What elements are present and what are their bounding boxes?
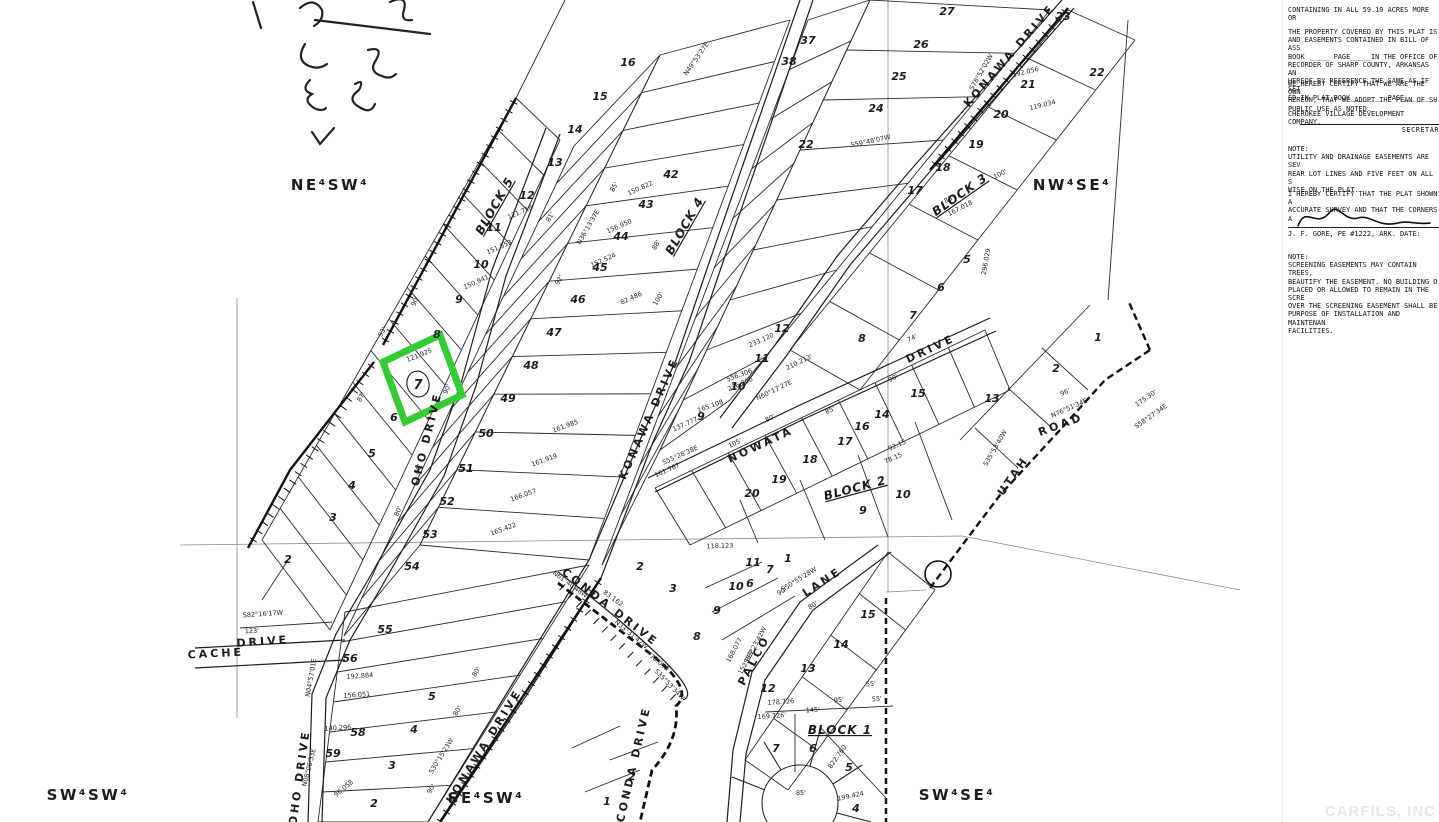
lot-number: 27 xyxy=(939,5,955,18)
labels-layer: NE⁴SW⁴NW⁴SE⁴SW⁴SW⁴SE⁴SW⁴SW⁴SE⁴KONAWA DRI… xyxy=(47,2,1169,822)
lot-number: 19 xyxy=(771,473,787,486)
dimension-label: 88' xyxy=(650,238,662,251)
dimension-label: 296.029 xyxy=(980,248,993,276)
lot-number: 56 xyxy=(342,652,358,665)
lot-number: 50 xyxy=(478,427,494,440)
dimension-label: 92.15 xyxy=(887,438,907,453)
dimension-label: 123' xyxy=(245,627,260,635)
lot-number: 2 xyxy=(1052,362,1060,375)
street-label: DRIVE xyxy=(236,633,290,650)
dimension-label: S30°15'23W xyxy=(427,736,455,775)
lot-number: 15 xyxy=(910,387,926,400)
lot-number: 9 xyxy=(713,604,721,617)
dimension-label: 55' xyxy=(866,680,877,689)
dimension-label: N04°57'01E xyxy=(304,658,319,698)
lot-number: 12 xyxy=(774,322,790,335)
lot-number: 47 xyxy=(545,326,562,339)
lot-number: 16 xyxy=(854,420,870,433)
utility-easement-note: NOTE: UTILITY AND DRAINAGE EASEMENTS ARE… xyxy=(1288,145,1439,194)
dimension-label: 150.822 xyxy=(626,179,654,197)
dimension-label: S35°53'40W xyxy=(982,428,1009,467)
street-label: UTAH xyxy=(995,454,1032,499)
dimension-label: 78.15 xyxy=(883,451,903,466)
dimension-label: 199.424 xyxy=(837,789,865,802)
lot-number: 3 xyxy=(669,582,677,595)
lot-number: 9 xyxy=(859,504,867,517)
lot-number: 8 xyxy=(858,332,866,345)
dimension-label: 74' xyxy=(906,332,919,344)
lot-number: 14 xyxy=(874,408,889,421)
dimension-label: 165.422 xyxy=(489,521,517,538)
dimension-label: S59°48'07W xyxy=(850,133,892,149)
lot-number: 10 xyxy=(728,580,744,593)
lot-number: 49 xyxy=(499,392,516,405)
lot-number: 3 xyxy=(388,759,396,772)
dimension-label: 96' xyxy=(1059,386,1072,397)
lot-number: 21 xyxy=(1020,78,1035,91)
lot-number: 1 xyxy=(1094,331,1102,344)
dimension-label: 156.051 xyxy=(343,690,370,700)
watermark: CARFILS, INC xyxy=(1325,803,1436,820)
secretary-label: SECRETAR xyxy=(1402,126,1439,134)
lot-number: 11 xyxy=(754,352,769,365)
lot-number: 2 xyxy=(628,770,636,783)
lot-number: 6 xyxy=(809,742,817,755)
dimension-label: 169.726' xyxy=(757,711,786,721)
lot-number: 18 xyxy=(802,453,818,466)
lot-number: 4 xyxy=(851,802,860,815)
street-label: KONAWA DRIVE xyxy=(961,2,1058,110)
dimension-label: 121.718 xyxy=(506,203,534,221)
block-label: BLOCK 4 xyxy=(662,195,706,258)
lot-number: 4 xyxy=(409,723,418,736)
lot-number: 9 xyxy=(455,293,463,306)
dimension-label: 100' xyxy=(651,291,665,307)
dimension-label: 150.941 xyxy=(462,273,490,291)
lot-number: 6 xyxy=(390,411,398,424)
lot-number: 25 xyxy=(891,70,907,83)
dimension-label: 166.057 xyxy=(509,487,537,504)
dimension-label: 161.919 xyxy=(530,452,558,469)
dimension-label: 90' xyxy=(442,383,453,396)
lot-number: 11 xyxy=(745,556,760,569)
lot-number: 12 xyxy=(760,682,776,695)
quarter-section-label: SW⁴SE⁴ xyxy=(919,786,996,804)
dimension-label: 140.296 xyxy=(324,723,351,732)
dimension-label: 165.108 xyxy=(696,398,724,415)
quarter-section-label: SW⁴SW⁴ xyxy=(47,786,130,804)
lot-number: 22 xyxy=(1089,66,1105,79)
lot-number: 20 xyxy=(993,108,1009,121)
plat-map: 7 121.925 NE⁴SW⁴NW⁴SE⁴SW⁴SW⁴SE⁴SW⁴SW⁴SE⁴… xyxy=(0,0,1439,822)
plat-document: { "title": "Cherokee Village subdivision… xyxy=(0,0,1439,822)
dimension-label: 80' xyxy=(807,599,820,611)
lot-number: 8 xyxy=(433,328,441,341)
dimension-label: 85' xyxy=(796,789,807,797)
dimension-label: 81' xyxy=(544,210,556,223)
dimension-label: 80' xyxy=(393,505,404,518)
dimension-label: 178.726 xyxy=(767,697,794,707)
streets-layer xyxy=(195,0,1074,822)
legal-text-panel: CONTAINING IN ALL 59.10 ACRES MORE OR TH… xyxy=(1286,0,1439,822)
dimension-label: 100' xyxy=(992,167,1008,181)
lot-number: 1 xyxy=(784,552,792,565)
street-label: CONDA DRIVE xyxy=(614,705,653,822)
certification-paragraph: WE HEREBY CERTIFY THAT WE ARE THE OWN HE… xyxy=(1288,80,1439,113)
lot-number: 48 xyxy=(522,359,539,372)
lot-number: 14 xyxy=(833,638,848,651)
lot-number: 23 xyxy=(1055,10,1071,23)
dimension-label: 55' xyxy=(872,695,883,704)
dimension-label: 80' xyxy=(451,704,463,717)
dimension-label: 233.120 xyxy=(747,331,775,349)
block-label: BLOCK 1 xyxy=(808,723,872,737)
lot-number: 54 xyxy=(404,560,419,573)
lot-number: 5 xyxy=(428,690,436,703)
handwritten-notes xyxy=(253,0,430,144)
block-label: BLOCK 2 xyxy=(822,473,888,503)
lot-number: 2 xyxy=(370,797,378,810)
dimension-label: 92' xyxy=(553,273,565,286)
lot-number: 55 xyxy=(377,623,393,636)
dimension-label: 90' xyxy=(425,782,437,795)
surveyor-signature xyxy=(1290,202,1439,230)
lot-number: 7 xyxy=(772,742,780,755)
dimension-label: 151.553 xyxy=(485,238,513,256)
street-label: CONDA DRIVE xyxy=(559,566,661,649)
lot-number: 13 xyxy=(800,662,816,675)
lot-number: 10 xyxy=(473,258,489,271)
acreage-note: CONTAINING IN ALL 59.10 ACRES MORE OR xyxy=(1288,6,1439,22)
scan-seam xyxy=(1282,0,1283,822)
quarter-section-label: NE⁴SW⁴ xyxy=(291,176,369,194)
lot-number: 6 xyxy=(937,281,945,294)
lot-number: 14 xyxy=(567,123,582,136)
lot-number: 22 xyxy=(798,138,814,151)
lot-number: 17 xyxy=(837,435,853,448)
cul-de-sac xyxy=(732,734,871,822)
lot-number: 10 xyxy=(895,488,911,501)
highlighted-lot-number: 7 xyxy=(413,378,423,393)
lot-number: 13 xyxy=(547,156,563,169)
lot-number: 7 xyxy=(909,309,917,322)
lot-number: 37 xyxy=(800,34,816,47)
oho-drive-road xyxy=(308,128,546,822)
lot-number: 13 xyxy=(984,392,1000,405)
dimension-label: 192.884 xyxy=(346,671,373,681)
dimension-label: 168.077 xyxy=(724,636,744,663)
dimension-label: 85' xyxy=(608,180,620,193)
lot-number: 5 xyxy=(368,447,376,460)
dimension-label: S82°16'17W xyxy=(242,609,283,620)
lot-number: 8 xyxy=(693,630,701,643)
surveyor-name-line: J. F. GORE, PE #1222, ARK. DATE: xyxy=(1288,227,1439,238)
lot-number: 51 xyxy=(458,462,473,475)
lot-number: 1 xyxy=(603,795,611,808)
screening-easement-note: NOTE: SCREENING EASEMENTS MAY CONTAIN TR… xyxy=(1288,253,1439,335)
dimension-label: N49°53'27E xyxy=(682,41,711,77)
dimension-label: 90' xyxy=(887,372,900,384)
dimension-label: 96.058 xyxy=(332,778,355,799)
lot-number: 5 xyxy=(845,761,853,774)
lot-number: 6 xyxy=(746,577,754,590)
lot-number: 58 xyxy=(350,726,366,739)
lot-number: 52 xyxy=(439,495,455,508)
lot-number: 11 xyxy=(486,221,501,234)
quarter-section-label: NW⁴SE⁴ xyxy=(1033,176,1111,194)
lot-number: 20 xyxy=(744,487,760,500)
dimension-label: 161.985 xyxy=(551,418,579,435)
lot-number: 5 xyxy=(963,253,971,266)
lot-number: 3 xyxy=(329,511,337,524)
lot-number: 26 xyxy=(913,38,929,51)
lot-number: 43 xyxy=(637,198,654,211)
lot-number: 24 xyxy=(868,102,883,115)
dimension-label: 80' xyxy=(764,412,777,424)
lot-number: 2 xyxy=(636,560,644,573)
dimension-label: 175.30' xyxy=(1134,388,1159,409)
dimension-label: 80' xyxy=(470,665,482,678)
lot-number: 16 xyxy=(620,56,636,69)
dimension-label: 118.123 xyxy=(706,542,733,551)
lot-number: 12 xyxy=(519,189,535,202)
lot-number: 2 xyxy=(284,553,292,566)
dimension-label: 82.486 xyxy=(619,290,643,307)
lot-number: 15 xyxy=(592,90,608,103)
lot-number: 38 xyxy=(781,55,797,68)
lot-number: 17 xyxy=(907,184,923,197)
lot-number: 59 xyxy=(325,747,341,760)
dimension-label: 145' xyxy=(805,706,820,715)
lot-number: 53 xyxy=(422,528,438,541)
dimension-label: 95' xyxy=(834,696,845,705)
lot-number: 7 xyxy=(766,563,774,576)
lot-number: 46 xyxy=(569,293,586,306)
lot-number: 4 xyxy=(347,479,356,492)
secretary-signature-line: SECRETAR xyxy=(1300,124,1439,134)
lot-number: 19 xyxy=(968,138,984,151)
dimension-label: 119.034 xyxy=(1029,98,1057,112)
lot-number: 42 xyxy=(662,168,679,181)
lot-number: 18 xyxy=(935,161,951,174)
lot-number: 15 xyxy=(860,608,876,621)
street-label: CACHE xyxy=(187,646,244,662)
